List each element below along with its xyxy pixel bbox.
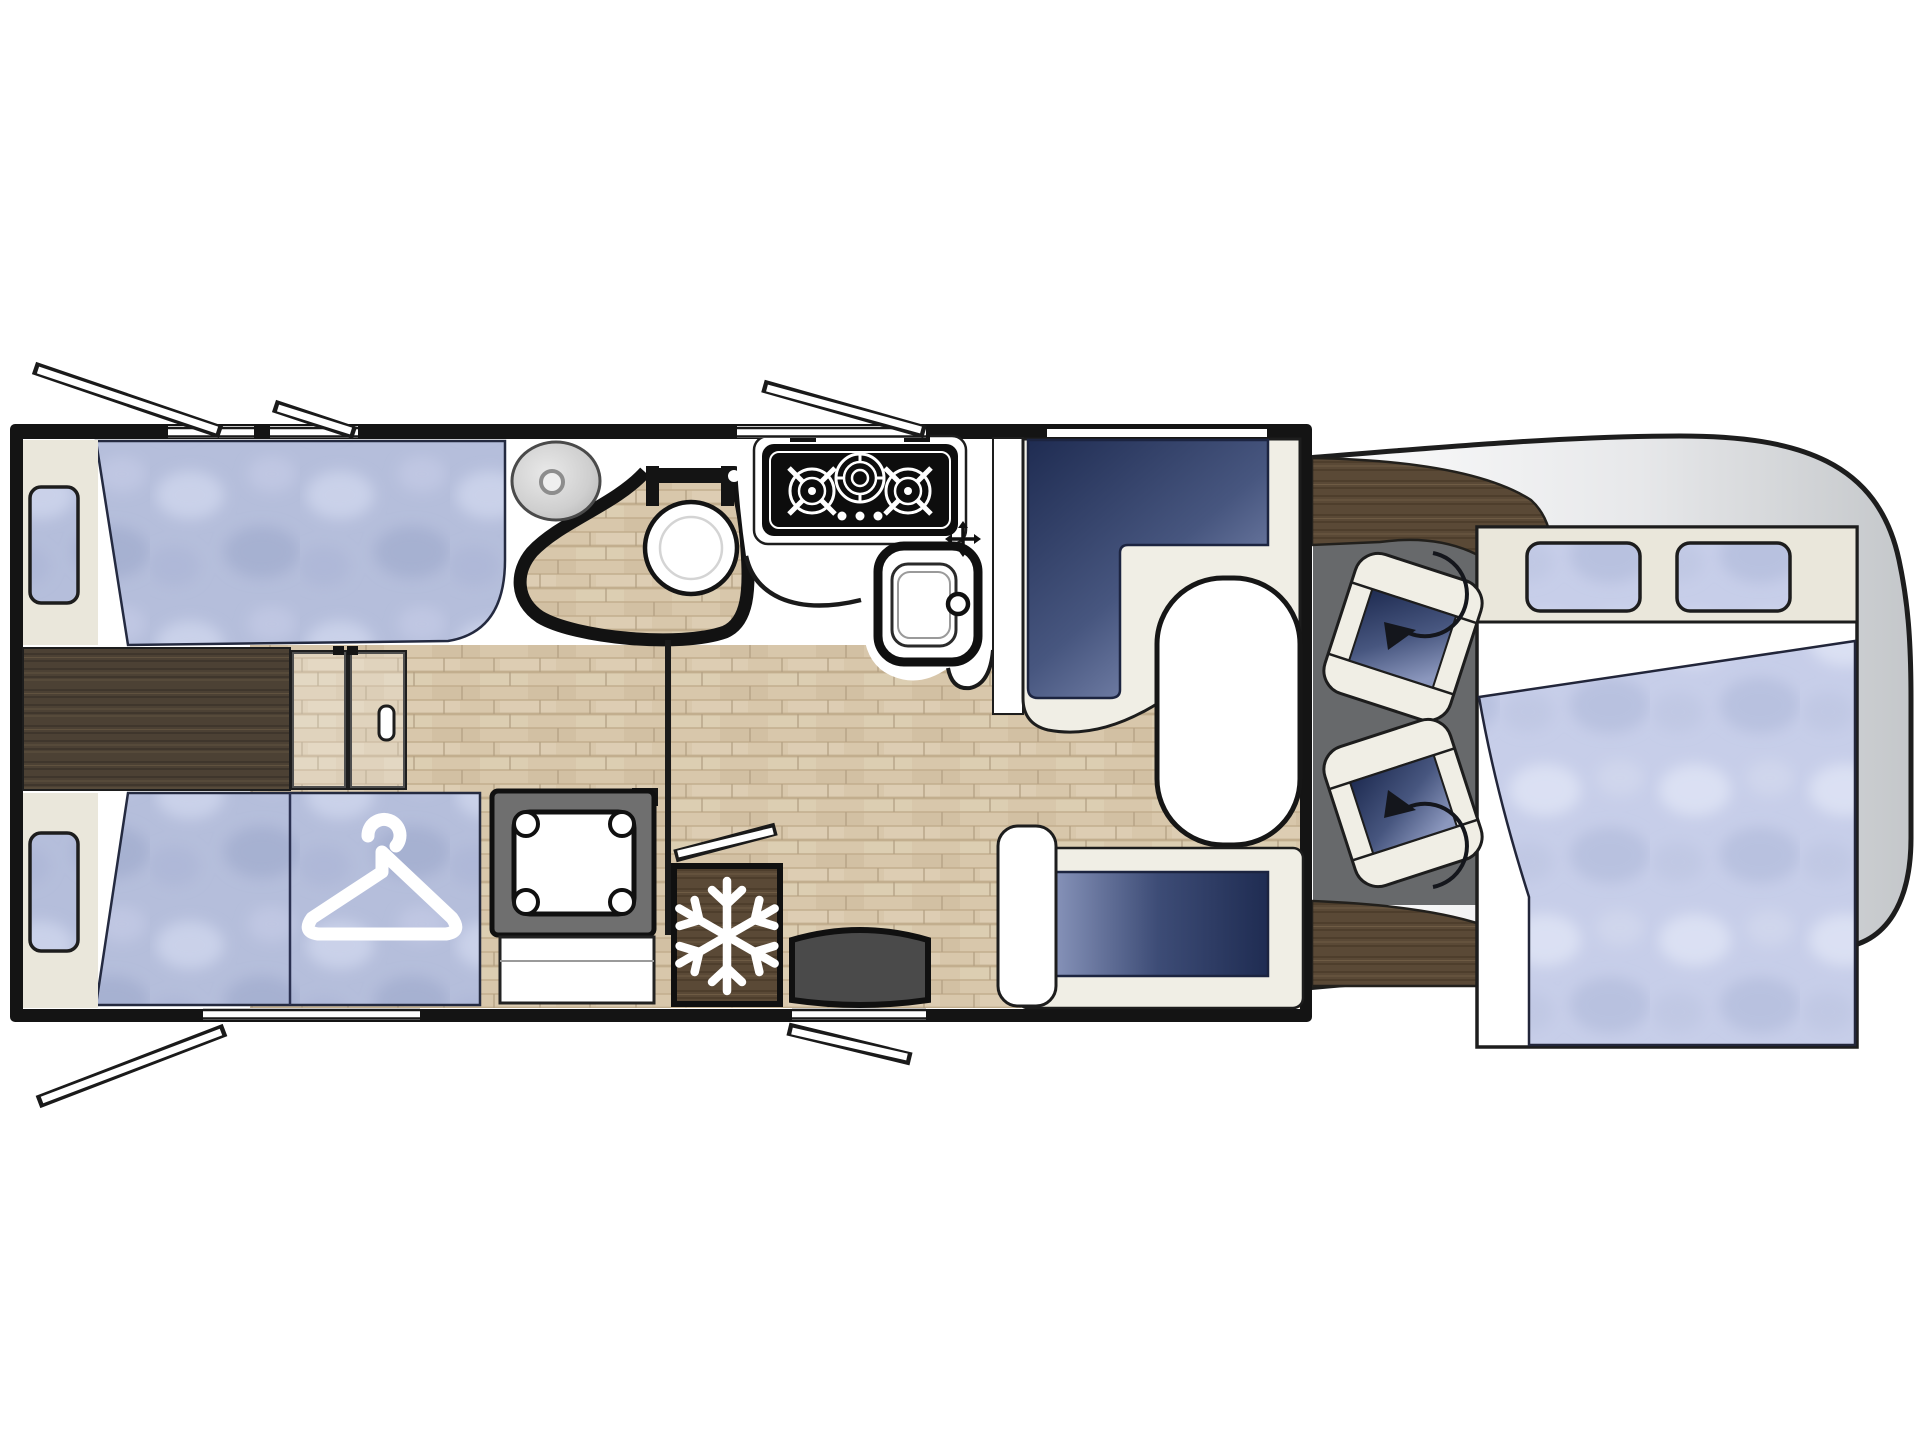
step-chest: [23, 648, 290, 790]
floorplan-page: [0, 0, 1920, 1440]
door-handle: [379, 706, 394, 740]
window-flap-open: [38, 1030, 225, 1102]
bench-seat: [998, 826, 1303, 1008]
sink-faucet: [948, 594, 968, 614]
galley-end-panel: [993, 438, 1023, 714]
front-bed-window-left: [1527, 543, 1640, 611]
drop-down-bed: [1477, 527, 1857, 1047]
front-bed-window-right: [1677, 543, 1790, 611]
rear-window-top: [30, 487, 78, 603]
dinette-wall-slot: [1047, 429, 1267, 437]
dinette-table: [1157, 578, 1300, 845]
habitation-box: [10, 424, 1312, 1022]
rear-bed-bottom-wardrobe: [96, 793, 480, 1005]
heater-drawer: [500, 937, 654, 1003]
rear-bed-top-mattress: [96, 441, 505, 645]
hob: [754, 430, 966, 544]
window-slot: [203, 1008, 420, 1020]
motorhome-floorplan: [0, 0, 1920, 1440]
entry-door-open: [788, 1029, 911, 1059]
sliding-door: [292, 646, 405, 788]
washbasin-drain: [541, 471, 563, 493]
bench-armrest: [998, 826, 1056, 1006]
refrigerator: [672, 866, 782, 1004]
entry-door-slot: [792, 1008, 926, 1020]
front-bed-mattress: [1479, 641, 1855, 1045]
cab-section: [1306, 436, 1911, 1047]
bench-backrest: [1048, 872, 1268, 976]
window-flap-open: [34, 368, 221, 432]
rear-window-bottom: [30, 833, 78, 951]
entry-step: [792, 930, 928, 1005]
heater-unit: [492, 791, 654, 1003]
